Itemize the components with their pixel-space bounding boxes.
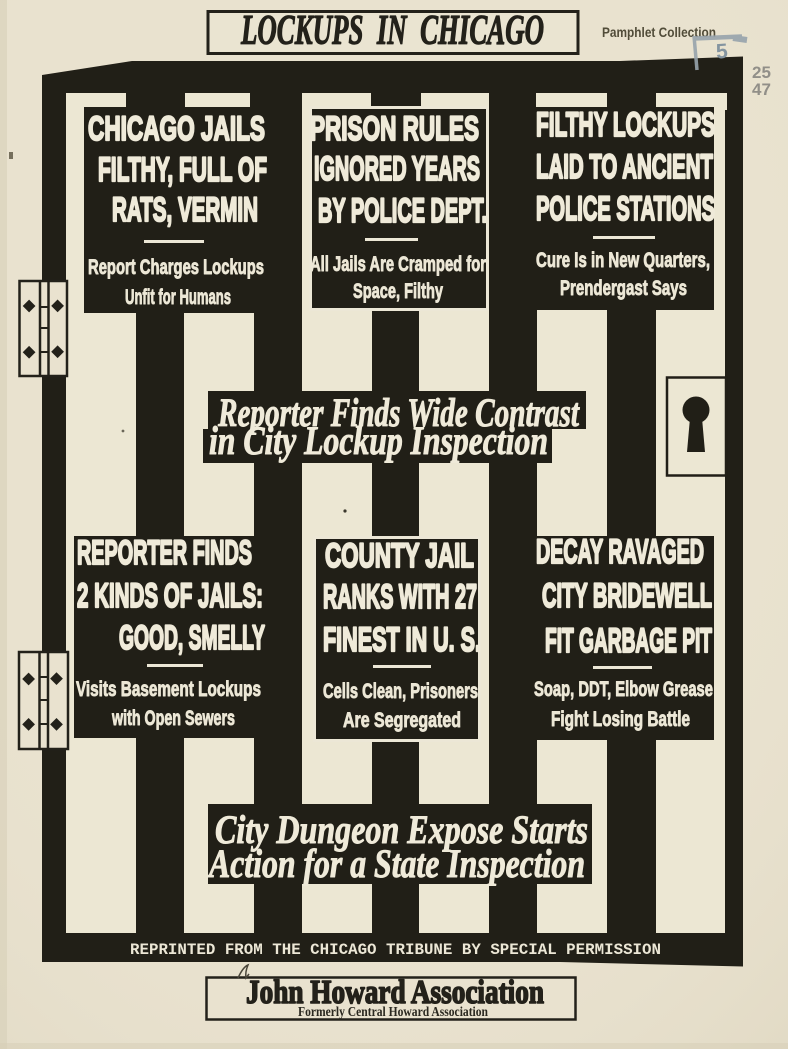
svg-text:5: 5 [715,40,729,64]
svg-text:Soap, DDT, Elbow Grease: Soap, DDT, Elbow Grease [534,678,713,701]
svg-text:FILTHY, FULL OF: FILTHY, FULL OF [98,151,267,189]
svg-text:FIT GARBAGE PIT: FIT GARBAGE PIT [545,622,712,660]
svg-text:Cure Is in New Quarters,: Cure Is in New Quarters, [536,249,710,272]
svg-text:REPRINTED FROM THE CHICAGO TRI: REPRINTED FROM THE CHICAGO TRIBUNE BY SP… [130,941,661,959]
svg-text:Action for a State Inspection: Action for a State Inspection [207,841,585,886]
svg-text:BY POLICE DEPT.: BY POLICE DEPT. [318,192,487,230]
svg-text:Are Segregated: Are Segregated [343,709,461,732]
svg-text:RATS, VERMIN: RATS, VERMIN [112,191,258,229]
svg-text:47: 47 [752,80,771,99]
svg-text:Unfit for Humans: Unfit for Humans [125,286,231,309]
svg-text:Formerly Central Howard Associ: Formerly Central Howard Association [298,1004,488,1019]
svg-text:Prendergast Says: Prendergast Says [560,277,687,300]
svg-text:CHICAGO JAILS: CHICAGO JAILS [88,110,265,148]
svg-text:COUNTY JAIL: COUNTY JAIL [325,537,474,575]
svg-text:IGNORED YEARS: IGNORED YEARS [314,150,480,188]
svg-text:Space, Filthy: Space, Filthy [353,280,443,303]
svg-text:in City Lockup Inspection: in City Lockup Inspection [209,418,548,463]
svg-text:FILTHY LOCKUPS: FILTHY LOCKUPS [536,106,715,144]
svg-text:POLICE STATIONS: POLICE STATIONS [536,190,715,228]
svg-text:GOOD, SMELLY: GOOD, SMELLY [119,619,265,657]
svg-text:RANKS WITH 27: RANKS WITH 27 [323,578,477,616]
svg-text:PRISON RULES: PRISON RULES [310,110,479,148]
svg-text:FINEST IN U. S.: FINEST IN U. S. [323,621,481,659]
svg-text:Cells Clean, Prisoners: Cells Clean, Prisoners [323,680,478,703]
svg-text:Fight Losing Battle: Fight Losing Battle [551,708,690,731]
svg-text:Report Charges Lockups: Report Charges Lockups [88,256,264,279]
svg-text:CITY BRIDEWELL: CITY BRIDEWELL [542,577,712,615]
svg-text:with Open Sewers: with Open Sewers [111,707,235,730]
svg-text:Visits Basement Lockups: Visits Basement Lockups [76,678,261,701]
svg-text:LAID TO ANCIENT: LAID TO ANCIENT [536,148,713,186]
svg-text:LOCKUPS IN CHICAGO: LOCKUPS IN CHICAGO [240,8,544,54]
svg-text:DECAY RAVAGED: DECAY RAVAGED [536,533,704,571]
svg-text:REPORTER FINDS: REPORTER FINDS [77,534,252,572]
svg-text:2 KINDS OF JAILS:: 2 KINDS OF JAILS: [77,577,263,615]
svg-text:All Jails Are Cramped for: All Jails Are Cramped for [310,253,486,276]
